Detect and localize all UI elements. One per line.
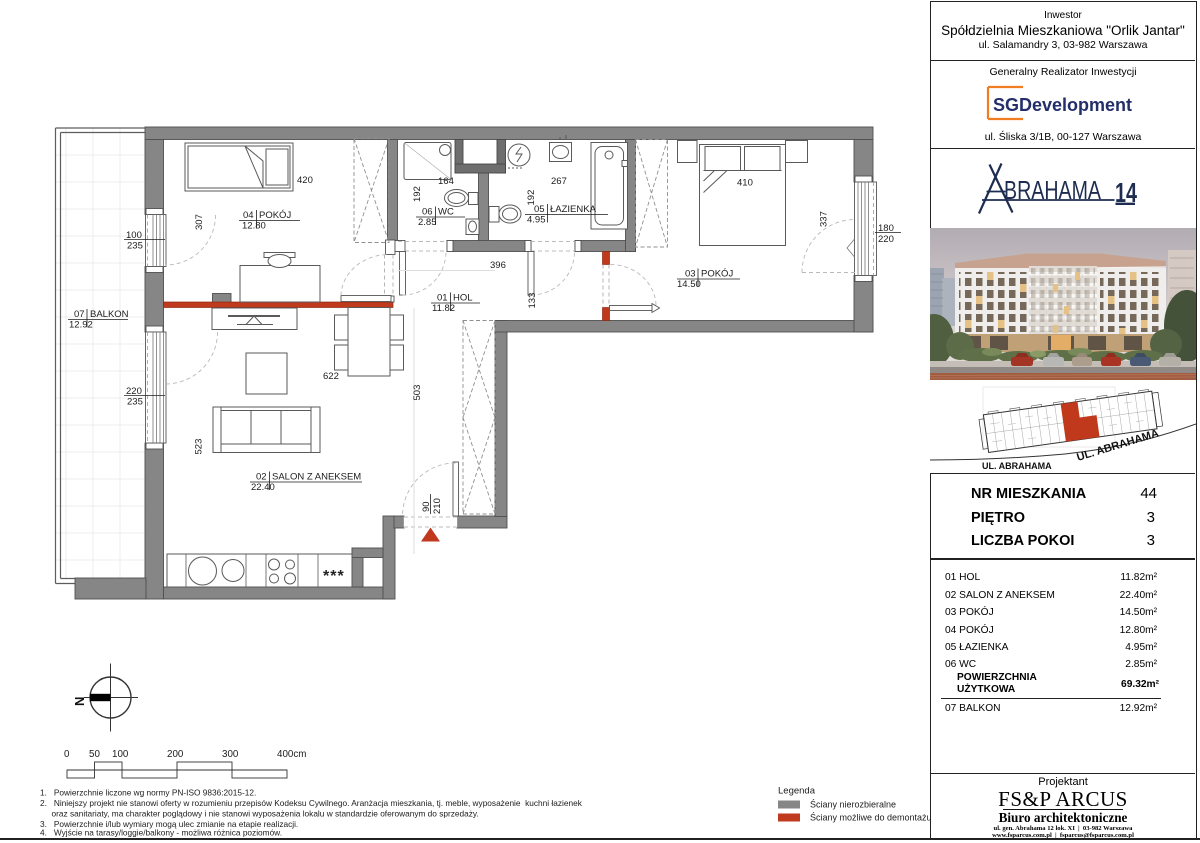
svg-text:220: 220 bbox=[878, 234, 894, 245]
svg-text:Ściany nierozbieralne: Ściany nierozbieralne bbox=[810, 799, 896, 810]
svg-text:1. Powierzchnie liczone wg n: 1. Powierzchnie liczone wg normy PN-ISO … bbox=[40, 788, 256, 798]
svg-text:337: 337 bbox=[819, 211, 830, 227]
svg-text:192: 192 bbox=[526, 190, 537, 206]
svg-text:410: 410 bbox=[737, 178, 753, 189]
svg-text:523: 523 bbox=[194, 439, 205, 455]
svg-text:4. Wyjście na tarasy/loggie/: 4. Wyjście na tarasy/loggie/balkony - mo… bbox=[40, 828, 282, 838]
svg-text:133: 133 bbox=[527, 293, 538, 309]
svg-text:BALKON: BALKON bbox=[90, 309, 129, 320]
svg-text:503: 503 bbox=[412, 385, 423, 401]
svg-text:N: N bbox=[72, 697, 87, 706]
svg-text:01: 01 bbox=[437, 293, 448, 304]
svg-text:2. Niniejszy projekt nie sta: 2. Niniejszy projekt nie stanowi oferty … bbox=[40, 798, 583, 808]
svg-text:2.85: 2.85 bbox=[418, 217, 437, 228]
svg-text:200: 200 bbox=[167, 749, 184, 760]
svg-text:Legenda: Legenda bbox=[778, 786, 816, 797]
svg-text:235: 235 bbox=[127, 397, 143, 408]
svg-text:12.92: 12.92 bbox=[69, 320, 93, 331]
svg-text:50: 50 bbox=[89, 749, 100, 760]
svg-text:307: 307 bbox=[194, 214, 205, 230]
svg-text:12.80: 12.80 bbox=[242, 221, 266, 232]
svg-text:210: 210 bbox=[432, 498, 443, 514]
svg-text:HOL: HOL bbox=[453, 293, 473, 304]
svg-text:***: *** bbox=[323, 568, 345, 585]
svg-text:300: 300 bbox=[222, 749, 239, 760]
svg-text:02: 02 bbox=[256, 472, 267, 483]
svg-text:03: 03 bbox=[685, 269, 696, 280]
svg-text:100: 100 bbox=[112, 749, 129, 760]
svg-text:POKÓJ: POKÓJ bbox=[701, 269, 733, 280]
svg-text:WC: WC bbox=[438, 207, 454, 218]
svg-text:0: 0 bbox=[64, 749, 70, 760]
svg-text:04: 04 bbox=[243, 210, 254, 221]
svg-text:UL. ABRAHAMA: UL. ABRAHAMA bbox=[982, 461, 1052, 471]
svg-text:192: 192 bbox=[412, 186, 423, 202]
svg-text:235: 235 bbox=[127, 241, 143, 252]
svg-text:Ściany możliwe do demontażu: Ściany możliwe do demontażu bbox=[810, 812, 930, 823]
svg-text:14: 14 bbox=[1115, 177, 1137, 208]
svg-text:396: 396 bbox=[490, 260, 506, 271]
svg-text:4.95: 4.95 bbox=[527, 215, 546, 226]
svg-text:420: 420 bbox=[297, 175, 313, 186]
svg-text:06: 06 bbox=[422, 207, 433, 218]
svg-text:11.82: 11.82 bbox=[432, 303, 455, 314]
svg-text:07: 07 bbox=[74, 309, 85, 320]
svg-text:622: 622 bbox=[323, 371, 339, 382]
svg-text:POKÓJ: POKÓJ bbox=[259, 210, 291, 221]
svg-text:BRAHAMA: BRAHAMA bbox=[1004, 175, 1101, 205]
svg-text:22.40: 22.40 bbox=[251, 482, 275, 493]
svg-text:164: 164 bbox=[438, 176, 454, 187]
svg-text:400cm: 400cm bbox=[277, 749, 306, 760]
svg-text:SALON Z ANEKSEM: SALON Z ANEKSEM bbox=[272, 472, 361, 483]
svg-text:oraz sanitariaty, ma charakter: oraz sanitariaty, ma charakter poglądowy… bbox=[40, 809, 479, 819]
svg-text:14.50: 14.50 bbox=[677, 279, 701, 290]
svg-text:267: 267 bbox=[551, 176, 567, 187]
svg-text:SGDevelopment: SGDevelopment bbox=[993, 95, 1132, 115]
svg-text:ŁAZIENKA: ŁAZIENKA bbox=[550, 204, 597, 215]
